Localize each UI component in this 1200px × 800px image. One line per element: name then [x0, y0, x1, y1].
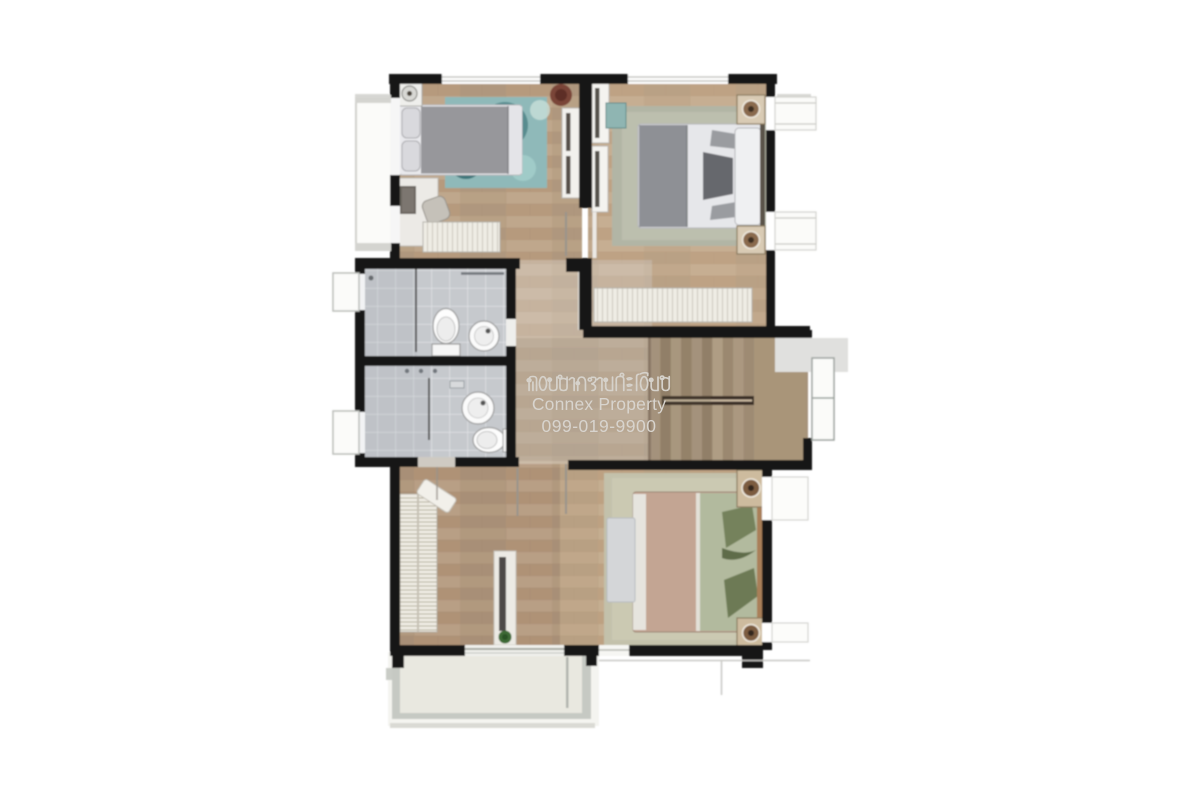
svg-text:099-019-9900: 099-019-9900 — [542, 416, 657, 436]
svg-text:Connex Property: Connex Property — [532, 394, 666, 414]
